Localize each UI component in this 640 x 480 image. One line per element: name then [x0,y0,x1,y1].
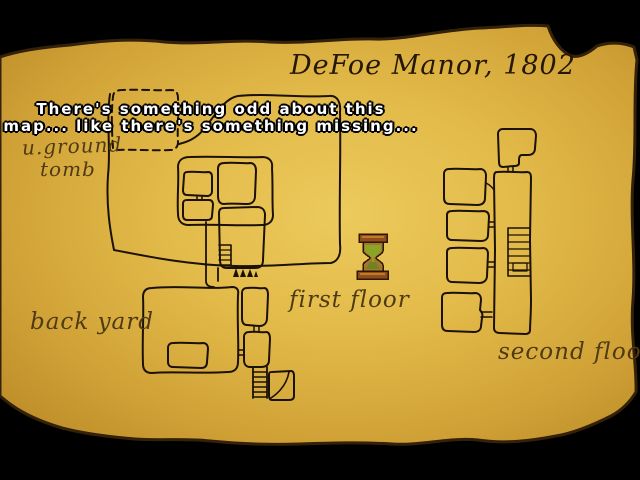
label-second-floor: second floor [498,339,640,365]
speech-text: There's something odd about this map... … [0,101,422,135]
label-underground-tomb-line2: tomb [40,157,96,181]
speech-line-2: map... like there's something missing... [0,118,422,135]
parchment-background[interactable] [0,25,637,444]
game-screen[interactable]: DeFoe Manor, 1802 u.ground tomb back yar… [0,0,640,480]
map-title: DeFoe Manor, 1802 [290,50,576,81]
label-back-yard: back yard [30,309,154,335]
speech-line-1: There's something odd about this [0,101,422,118]
label-first-floor: first floor [289,287,410,313]
label-underground-tomb-line1: u.ground [22,132,123,159]
